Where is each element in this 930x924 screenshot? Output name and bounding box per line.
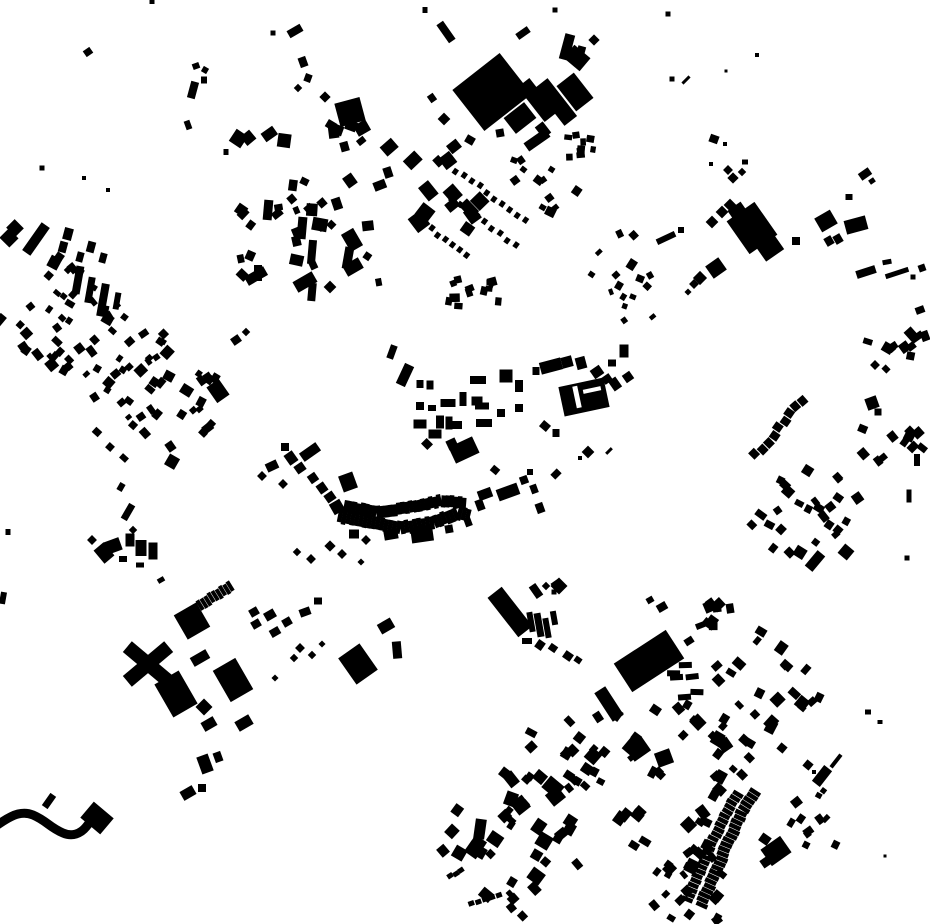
building — [138, 328, 149, 339]
building — [299, 177, 309, 187]
building — [622, 371, 635, 384]
rowhouse-building — [506, 206, 514, 214]
building — [832, 492, 844, 503]
building — [164, 453, 180, 469]
building — [444, 824, 460, 840]
building — [517, 910, 528, 921]
building — [723, 165, 733, 175]
building — [746, 519, 757, 530]
building — [119, 556, 127, 562]
building — [201, 66, 209, 74]
building — [553, 8, 558, 13]
building — [263, 608, 277, 621]
building — [89, 334, 100, 345]
building — [428, 405, 436, 411]
building — [649, 313, 657, 320]
building — [824, 501, 836, 513]
building — [396, 363, 414, 387]
building — [742, 160, 748, 165]
building — [382, 166, 393, 179]
rowhouse-building — [483, 189, 491, 197]
building — [22, 222, 50, 256]
building — [709, 622, 718, 630]
building — [875, 409, 882, 416]
building — [523, 128, 550, 151]
building — [780, 659, 794, 673]
building — [527, 469, 533, 475]
building — [857, 447, 870, 461]
building — [768, 543, 779, 554]
building — [811, 538, 820, 547]
rowhouse-building — [468, 177, 476, 185]
building — [261, 126, 279, 143]
building — [886, 430, 899, 443]
building — [121, 503, 136, 521]
building — [477, 487, 494, 501]
building — [248, 606, 260, 617]
building — [755, 53, 759, 57]
building — [139, 427, 152, 440]
building — [196, 753, 213, 774]
building — [0, 592, 7, 605]
building — [386, 344, 397, 360]
rowhouse-building — [434, 231, 442, 239]
building — [519, 166, 527, 174]
building — [796, 813, 807, 824]
rowhouse-building — [498, 200, 506, 208]
building — [274, 204, 283, 212]
building — [42, 793, 56, 809]
building — [846, 194, 853, 200]
building — [736, 769, 748, 781]
building — [89, 392, 100, 403]
building — [805, 550, 826, 572]
building — [814, 813, 825, 825]
building — [45, 305, 54, 314]
building — [723, 142, 727, 146]
building — [689, 713, 707, 731]
building — [82, 370, 90, 378]
building — [542, 582, 550, 590]
building — [614, 630, 685, 692]
building — [392, 641, 402, 659]
building — [65, 316, 73, 325]
building — [572, 131, 580, 139]
building — [342, 173, 358, 189]
building — [711, 660, 723, 672]
building — [51, 336, 63, 348]
building — [73, 342, 86, 355]
building — [705, 257, 727, 278]
building — [550, 468, 561, 479]
building — [93, 364, 103, 374]
building — [436, 416, 444, 429]
building — [725, 70, 728, 73]
building — [126, 534, 135, 547]
building — [831, 840, 841, 850]
building — [855, 265, 876, 279]
building — [460, 392, 467, 406]
building — [884, 855, 887, 858]
building — [308, 651, 316, 659]
building — [533, 367, 540, 375]
rowhouse-building — [452, 168, 460, 176]
building — [286, 193, 297, 204]
building — [868, 177, 876, 185]
building — [62, 227, 74, 241]
building — [832, 472, 843, 483]
building — [201, 77, 207, 84]
building — [324, 281, 337, 294]
building — [164, 440, 176, 453]
building — [802, 840, 811, 849]
building — [590, 365, 605, 380]
building — [905, 556, 910, 561]
rowhouse-building — [522, 216, 530, 224]
building — [800, 664, 811, 676]
rowhouse-building — [442, 235, 450, 243]
building — [487, 277, 498, 288]
building — [678, 730, 689, 741]
building — [124, 336, 136, 347]
building — [136, 563, 144, 568]
building — [20, 327, 34, 341]
building — [289, 253, 304, 266]
rowhouse-building — [513, 212, 521, 220]
building — [349, 530, 359, 539]
building — [608, 288, 614, 295]
rowhouse-building — [468, 900, 475, 907]
building — [128, 420, 138, 430]
rowhouse-building — [460, 171, 468, 179]
building — [418, 180, 439, 201]
building — [661, 890, 670, 899]
building — [263, 200, 274, 221]
building — [298, 56, 309, 68]
building — [550, 611, 558, 626]
building — [734, 700, 744, 710]
building — [754, 508, 767, 520]
building — [450, 803, 464, 817]
building — [670, 674, 683, 681]
building — [683, 636, 694, 647]
building — [337, 549, 347, 559]
building — [773, 505, 783, 515]
rowhouse-building — [449, 241, 457, 249]
building — [829, 753, 842, 768]
building — [87, 535, 97, 545]
building — [529, 583, 544, 599]
rowhouse-building — [477, 182, 485, 190]
building — [293, 461, 306, 474]
building — [548, 643, 559, 653]
building — [25, 302, 35, 312]
building — [495, 128, 504, 137]
building — [293, 548, 301, 556]
building — [530, 818, 547, 836]
building — [250, 618, 262, 629]
building — [16, 320, 25, 329]
building — [421, 438, 433, 450]
building — [380, 138, 399, 157]
building — [774, 640, 789, 656]
building — [64, 299, 75, 309]
building — [299, 442, 321, 462]
building — [133, 363, 148, 378]
building — [812, 765, 832, 787]
building — [755, 625, 768, 637]
building — [129, 526, 137, 534]
building — [540, 856, 552, 868]
building — [533, 174, 545, 186]
building — [475, 403, 489, 410]
building — [488, 587, 533, 637]
building — [629, 293, 637, 300]
building — [314, 598, 322, 605]
building — [685, 673, 699, 680]
building — [678, 694, 691, 701]
building — [58, 241, 69, 254]
building — [621, 303, 628, 310]
building — [362, 220, 374, 231]
building — [427, 381, 434, 390]
building — [179, 383, 194, 398]
building — [120, 313, 129, 322]
building — [441, 399, 456, 407]
building — [870, 360, 880, 370]
building — [672, 702, 686, 716]
building — [444, 524, 453, 533]
building — [234, 714, 253, 732]
building — [486, 830, 505, 848]
building — [303, 73, 312, 83]
building — [539, 420, 551, 432]
rowhouse-building — [512, 241, 520, 249]
rowhouse-building — [495, 892, 502, 899]
building — [124, 396, 135, 406]
building — [116, 482, 125, 492]
building-footprint-map — [0, 0, 930, 924]
building — [86, 241, 97, 254]
building — [338, 643, 378, 684]
building — [577, 145, 585, 153]
building — [648, 899, 660, 911]
building — [708, 134, 719, 145]
building — [562, 650, 574, 662]
map-canvas — [0, 0, 930, 924]
building — [294, 84, 302, 92]
building — [271, 674, 278, 681]
building — [436, 21, 455, 44]
building — [578, 456, 582, 460]
building — [625, 258, 638, 271]
building — [244, 250, 256, 262]
building — [670, 77, 675, 82]
building — [43, 270, 54, 281]
building — [105, 442, 115, 452]
building — [372, 179, 387, 192]
building — [590, 146, 596, 153]
building — [588, 270, 596, 278]
building — [454, 302, 463, 309]
building — [841, 516, 851, 526]
building — [198, 784, 206, 792]
building — [571, 858, 583, 870]
building — [652, 867, 662, 877]
building — [510, 175, 521, 186]
building — [470, 376, 486, 384]
building — [571, 185, 583, 197]
building — [580, 138, 586, 146]
building — [815, 792, 823, 800]
building — [885, 267, 909, 279]
river — [0, 813, 90, 835]
building — [510, 156, 518, 164]
building — [573, 731, 587, 745]
building — [752, 636, 761, 646]
building — [649, 704, 662, 717]
building — [497, 409, 505, 417]
rowhouse-building — [488, 225, 496, 233]
building — [706, 216, 719, 229]
building — [237, 254, 245, 264]
building — [764, 519, 776, 530]
building — [801, 464, 815, 477]
building — [614, 281, 624, 291]
building — [596, 777, 605, 786]
building — [679, 662, 692, 668]
building — [361, 535, 371, 545]
building — [357, 558, 364, 565]
rowhouse-building — [503, 237, 511, 245]
building — [500, 370, 513, 383]
building — [184, 120, 193, 131]
building — [878, 720, 883, 724]
building — [292, 206, 300, 215]
building — [582, 446, 595, 459]
building — [918, 264, 927, 273]
building — [911, 275, 916, 280]
building — [573, 656, 582, 665]
building — [744, 752, 756, 764]
building — [257, 471, 267, 481]
building — [595, 248, 603, 256]
building — [464, 134, 476, 145]
building — [452, 421, 462, 429]
building — [534, 639, 546, 651]
building — [414, 420, 427, 429]
building — [265, 459, 280, 472]
building — [0, 313, 7, 327]
building — [776, 742, 787, 753]
building — [176, 409, 187, 420]
building — [287, 24, 304, 38]
building — [678, 227, 684, 233]
building — [563, 715, 575, 727]
building — [619, 293, 627, 301]
building — [319, 91, 330, 102]
building — [423, 7, 428, 13]
building — [802, 759, 813, 770]
building — [245, 219, 256, 230]
building — [538, 203, 546, 211]
building — [288, 179, 298, 191]
building — [535, 502, 546, 514]
building — [85, 345, 97, 358]
building — [529, 484, 539, 495]
building — [515, 26, 530, 40]
building — [75, 251, 84, 262]
building — [377, 617, 395, 634]
building — [230, 334, 242, 346]
building — [645, 596, 654, 605]
building — [522, 638, 532, 644]
building — [865, 710, 871, 715]
building — [628, 230, 639, 241]
building — [446, 417, 453, 430]
building — [864, 395, 879, 410]
building — [106, 188, 110, 192]
building — [224, 149, 229, 155]
building — [331, 197, 344, 211]
building — [416, 402, 424, 410]
building — [474, 498, 485, 511]
building — [269, 626, 282, 638]
building — [159, 345, 174, 361]
building — [213, 751, 224, 763]
building — [916, 442, 928, 453]
building — [192, 62, 201, 70]
building — [754, 687, 766, 699]
building — [200, 716, 217, 732]
rowhouse-building — [497, 229, 505, 237]
building — [690, 689, 703, 695]
building — [306, 554, 316, 564]
building — [417, 380, 424, 388]
building — [906, 351, 915, 360]
building — [375, 278, 382, 287]
building — [709, 162, 713, 166]
building — [683, 908, 695, 920]
building — [790, 796, 803, 809]
building — [580, 781, 591, 792]
building — [738, 168, 746, 176]
building — [490, 465, 501, 476]
building — [620, 345, 629, 358]
building — [438, 113, 451, 126]
building — [646, 271, 654, 280]
building — [281, 443, 289, 451]
building — [605, 447, 613, 455]
building — [608, 360, 616, 367]
building — [814, 210, 838, 233]
building — [553, 429, 560, 437]
building — [857, 424, 868, 434]
building — [476, 419, 492, 427]
building — [727, 172, 738, 183]
building — [324, 540, 335, 551]
building — [654, 748, 674, 768]
building — [525, 727, 538, 738]
building — [915, 305, 926, 315]
rowhouse-building — [463, 251, 471, 259]
building — [712, 673, 726, 687]
building — [863, 337, 874, 345]
building — [52, 323, 62, 333]
building — [515, 404, 523, 412]
building — [656, 231, 677, 245]
building — [271, 31, 276, 36]
